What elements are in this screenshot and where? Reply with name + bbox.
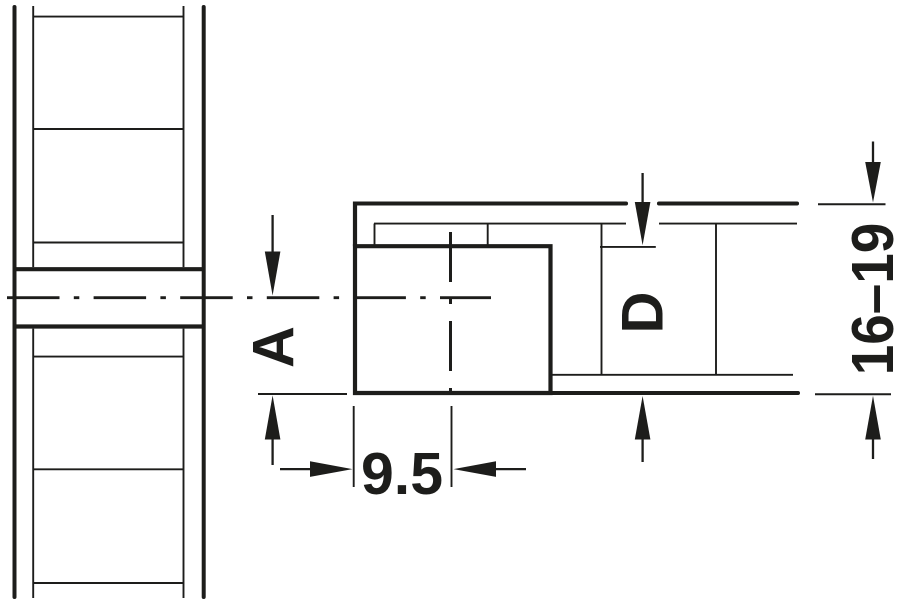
- svg-text:16–19: 16–19: [840, 223, 900, 376]
- svg-text:9.5: 9.5: [361, 441, 443, 507]
- svg-text:D: D: [610, 292, 675, 334]
- svg-text:A: A: [242, 326, 307, 368]
